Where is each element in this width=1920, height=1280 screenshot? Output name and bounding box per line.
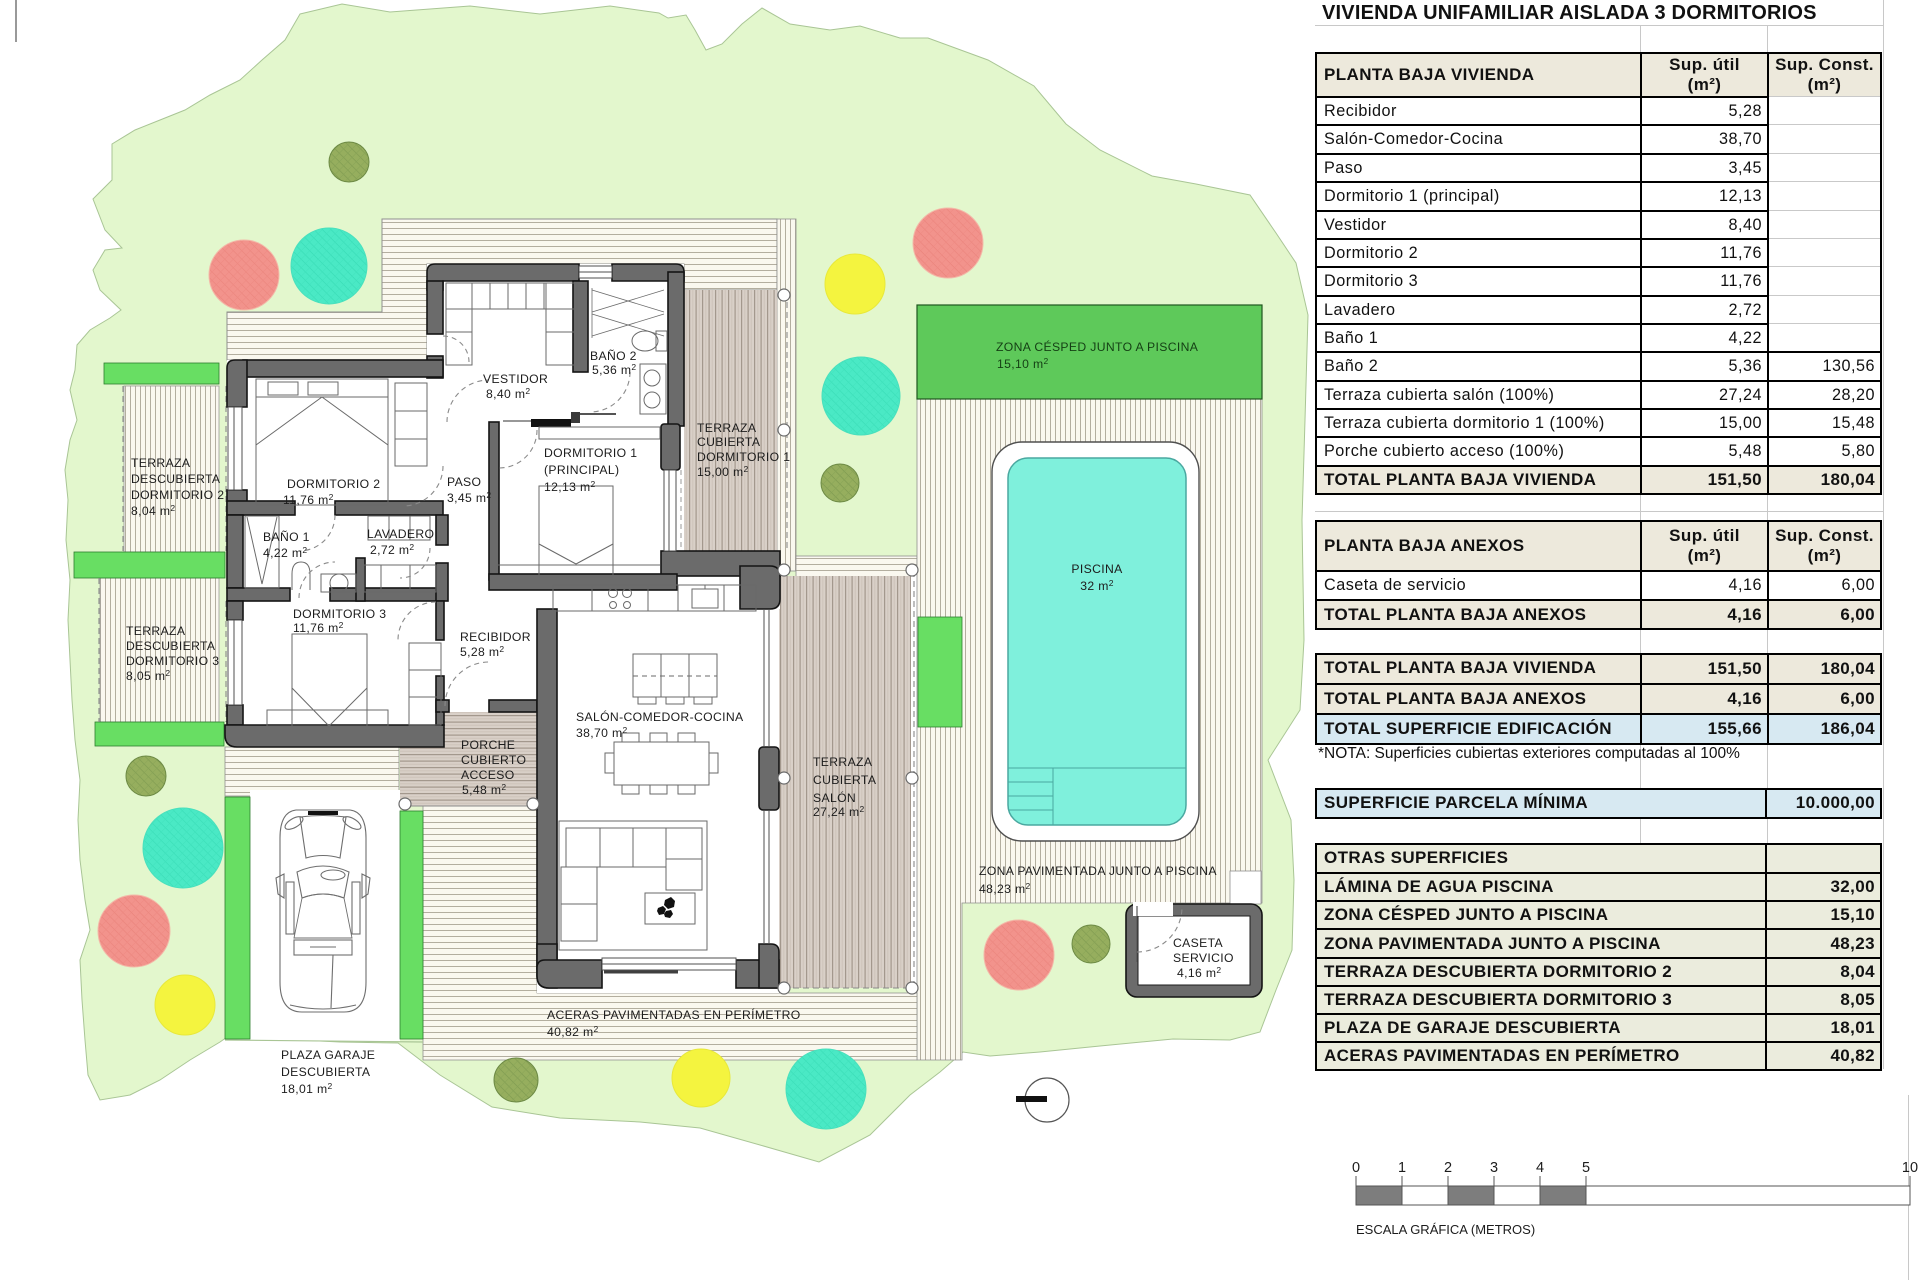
svg-text:4,16 m2: 4,16 m2 (1177, 965, 1221, 980)
svg-text:8,40 m2: 8,40 m2 (486, 386, 530, 401)
svg-text:5,36 m2: 5,36 m2 (592, 362, 636, 377)
svg-text:DORMITORIO 3: DORMITORIO 3 (293, 607, 386, 621)
svg-text:4,22 m2: 4,22 m2 (263, 545, 307, 560)
svg-text:38,70 m2: 38,70 m2 (576, 725, 628, 740)
svg-text:1: 1 (1398, 1160, 1406, 1176)
svg-text:DESCUBIERTA: DESCUBIERTA (126, 639, 216, 653)
svg-text:40,82 m2: 40,82 m2 (547, 1024, 599, 1039)
svg-text:27,24 m2: 27,24 m2 (813, 804, 865, 819)
svg-text:PORCHE: PORCHE (461, 738, 515, 752)
svg-text:LAVADERO: LAVADERO (367, 527, 434, 541)
svg-text:BAÑO 1: BAÑO 1 (263, 530, 310, 544)
svg-text:3,45 m2: 3,45 m2 (447, 490, 491, 505)
svg-text:ESCALA GRÁFICA (METROS): ESCALA GRÁFICA (METROS) (1356, 1222, 1535, 1237)
svg-text:18,01 m2: 18,01 m2 (281, 1081, 333, 1096)
svg-text:48,23 m2: 48,23 m2 (979, 881, 1031, 896)
svg-text:2: 2 (1444, 1160, 1452, 1176)
svg-text:BAÑO 2: BAÑO 2 (590, 349, 637, 363)
svg-text:11,76 m2: 11,76 m2 (293, 620, 344, 635)
svg-text:15,10 m2: 15,10 m2 (997, 356, 1049, 371)
svg-text:CUBIERTA: CUBIERTA (813, 773, 877, 787)
svg-text:ACERAS PAVIMENTADAS EN PERÍMET: ACERAS PAVIMENTADAS EN PERÍMETRO (547, 1007, 801, 1022)
svg-text:DESCUBIERTA: DESCUBIERTA (131, 472, 221, 486)
svg-text:SALÓN-COMEDOR-COCINA: SALÓN-COMEDOR-COCINA (576, 709, 744, 724)
svg-text:ZONA CÉSPED JUNTO A PISCINA: ZONA CÉSPED JUNTO A PISCINA (996, 339, 1199, 354)
svg-text:DORMITORIO 1: DORMITORIO 1 (544, 446, 637, 460)
svg-text:CUBIERTA: CUBIERTA (697, 435, 761, 449)
svg-text:8,05 m2: 8,05 m2 (126, 668, 170, 683)
svg-text:ACCESO: ACCESO (461, 768, 515, 782)
svg-text:15,00 m2: 15,00 m2 (697, 464, 749, 479)
svg-text:4: 4 (1536, 1160, 1544, 1176)
svg-text:10: 10 (1902, 1160, 1918, 1176)
svg-text:DORMITORIO 1: DORMITORIO 1 (697, 450, 790, 464)
svg-text:CASETA: CASETA (1173, 936, 1223, 950)
svg-text:SALÓN: SALÓN (813, 790, 856, 805)
svg-text:TERRAZA: TERRAZA (126, 624, 186, 638)
svg-text:TERRAZA: TERRAZA (813, 755, 873, 769)
svg-text:5: 5 (1582, 1160, 1590, 1176)
svg-text:11,76 m2: 11,76 m2 (283, 492, 334, 507)
svg-text:CUBIERTO: CUBIERTO (461, 753, 526, 767)
svg-text:0: 0 (1352, 1160, 1360, 1176)
svg-text:8,04 m2: 8,04 m2 (131, 503, 175, 518)
svg-text:12,13 m2: 12,13 m2 (544, 479, 596, 494)
svg-text:PASO: PASO (447, 475, 481, 489)
svg-text:DESCUBIERTA: DESCUBIERTA (281, 1065, 371, 1079)
svg-text:PISCINA: PISCINA (1071, 562, 1123, 576)
svg-text:2,72 m2: 2,72 m2 (370, 542, 414, 557)
svg-text:RECIBIDOR: RECIBIDOR (460, 630, 531, 644)
svg-text:SERVICIO: SERVICIO (1173, 951, 1234, 965)
svg-text:DORMITORIO 3: DORMITORIO 3 (126, 654, 219, 668)
svg-text:VESTIDOR: VESTIDOR (483, 372, 548, 386)
svg-text:TERRAZA: TERRAZA (131, 456, 191, 470)
svg-text:5,48 m2: 5,48 m2 (462, 782, 506, 797)
svg-text:ZONA PAVIMENTADA JUNTO A PISCI: ZONA PAVIMENTADA JUNTO A PISCINA (979, 864, 1217, 878)
svg-text:DORMITORIO 2: DORMITORIO 2 (131, 488, 224, 502)
svg-text:DORMITORIO 2: DORMITORIO 2 (287, 477, 380, 491)
svg-text:3: 3 (1490, 1160, 1498, 1176)
svg-text:(PRINCIPAL): (PRINCIPAL) (544, 463, 619, 477)
svg-text:TERRAZA: TERRAZA (697, 421, 757, 435)
svg-text:PLAZA GARAJE: PLAZA GARAJE (281, 1048, 375, 1062)
svg-text:5,28 m2: 5,28 m2 (460, 644, 504, 659)
